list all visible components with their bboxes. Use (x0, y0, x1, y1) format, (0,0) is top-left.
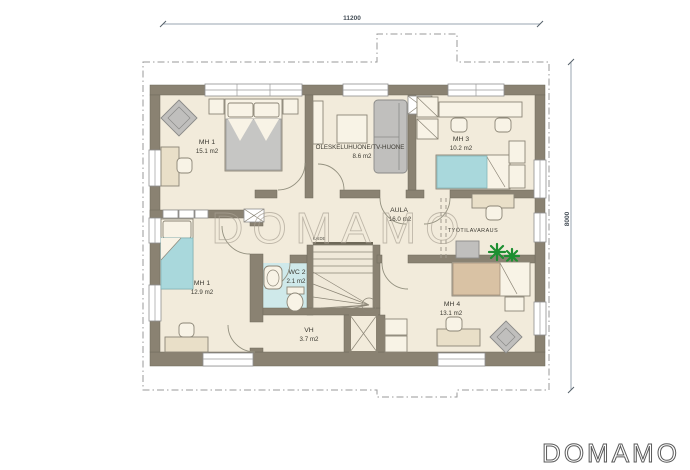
sink (264, 266, 282, 289)
room-area: 3.7 m2 (300, 336, 319, 343)
room-area: 12.9 m2 (191, 289, 214, 296)
plant-icon (505, 249, 519, 263)
room-area: 2.1 m2 (287, 278, 306, 285)
window (534, 302, 546, 335)
window (343, 84, 388, 96)
window (448, 84, 504, 96)
desk (437, 329, 480, 346)
window (149, 218, 161, 243)
sofa (374, 100, 407, 173)
floor-plan-svg: 11200 8000 (0, 0, 690, 470)
double-bed (225, 99, 282, 171)
room-area: 8.6 m2 (353, 153, 372, 160)
single-bed (452, 262, 530, 296)
wardrobe (195, 210, 208, 218)
desk (165, 337, 208, 352)
room-name: WC 2 (289, 269, 306, 276)
plant-icon (489, 244, 505, 260)
watermark-text: DOMAMO (212, 204, 469, 253)
window (534, 213, 546, 242)
desk-chair (179, 323, 194, 337)
room-area: 10.2 m2 (450, 145, 473, 152)
room-name: OLESKELUHUONE/TV-HUONE (316, 144, 405, 151)
wardrobe (163, 210, 178, 218)
single-bed (161, 219, 193, 289)
single-bed (436, 155, 510, 189)
window (534, 160, 546, 198)
desk-chair (177, 158, 192, 173)
bedside-shelf (509, 141, 525, 163)
desk-chair (446, 317, 462, 331)
window (149, 285, 161, 321)
side-table (505, 297, 524, 311)
desk (161, 147, 179, 186)
desk-chair (451, 118, 467, 132)
window (205, 84, 302, 96)
window (438, 353, 485, 366)
dimension-top-label: 11200 (343, 15, 361, 22)
dimension-right-label: 8000 (564, 211, 571, 226)
room-name: VH (304, 327, 314, 334)
window (149, 150, 161, 186)
room-area: 13.1 m2 (440, 310, 463, 317)
room-area: 15.1 m2 (196, 148, 219, 155)
dimension-right: 8000 (564, 59, 574, 393)
nightstand (209, 99, 224, 114)
coffee-table (337, 115, 367, 143)
brand-logo: DOMAMO (542, 438, 680, 468)
wardrobe (179, 210, 194, 218)
dimension-top: 11200 (160, 15, 543, 27)
nightstand (283, 99, 298, 114)
staircase (313, 245, 376, 312)
bedside-shelf (509, 165, 525, 188)
duct-shaft (350, 315, 377, 352)
desk-chair (495, 118, 511, 132)
floor-plan-page: 11200 8000 (0, 0, 690, 470)
room-name: MH 1 (194, 280, 210, 287)
room-name: MH 4 (444, 301, 460, 308)
desk-chair (486, 206, 502, 220)
toilet (287, 287, 304, 311)
desk (439, 102, 522, 117)
cabinet (313, 101, 323, 144)
room-name: MH 3 (453, 136, 469, 143)
window (203, 353, 253, 366)
room-name: MH 1 (199, 139, 215, 146)
